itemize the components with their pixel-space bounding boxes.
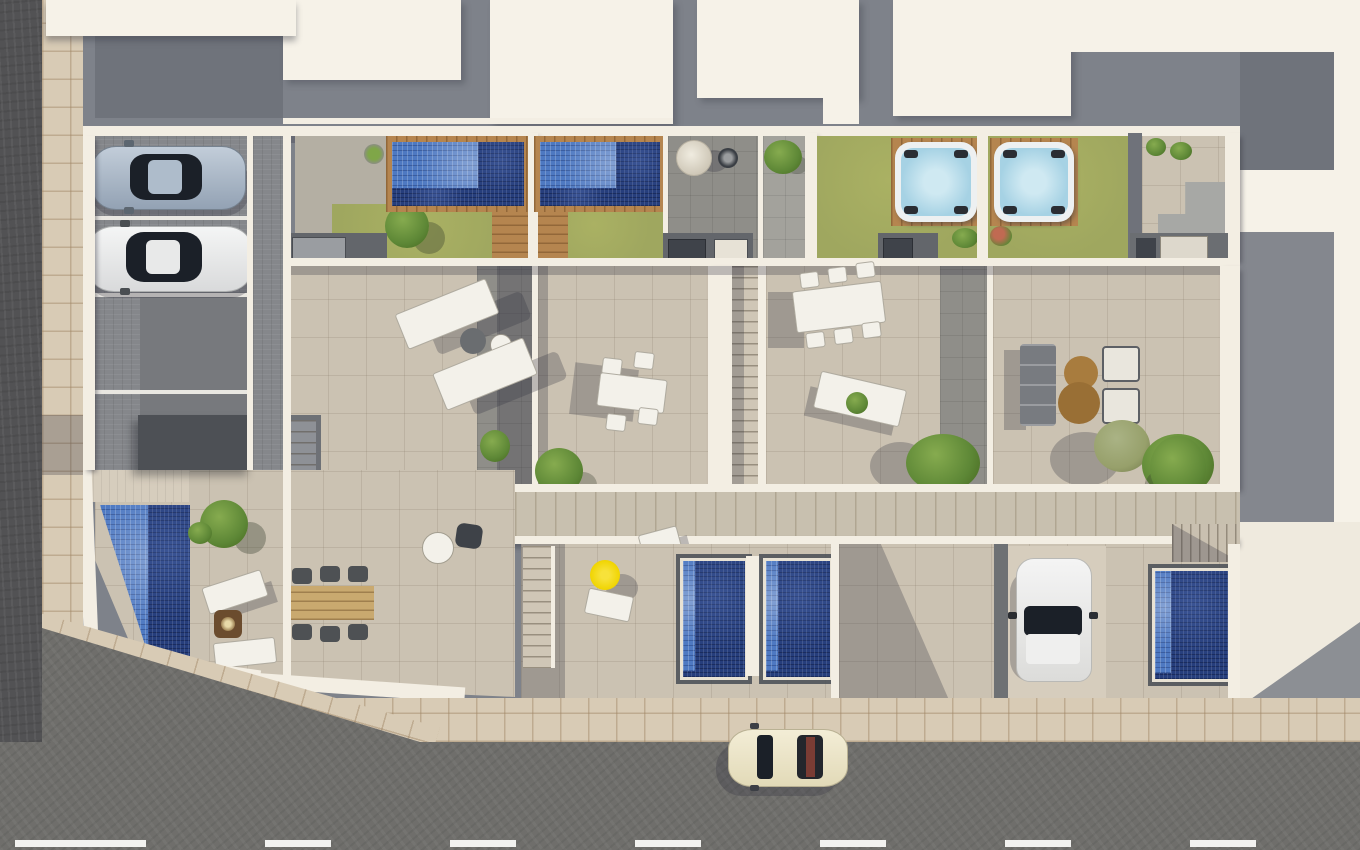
- dining-chair: [633, 351, 655, 370]
- cream-car-mirror: [750, 785, 759, 791]
- shrub: [952, 228, 978, 248]
- plunge-pool-3-step: [1155, 571, 1171, 673]
- silver-car-roof: [148, 160, 182, 194]
- dining-chair: [605, 413, 627, 432]
- side-table-dark: [460, 328, 486, 354]
- cream-car-windshield: [757, 735, 773, 779]
- armchair: [1102, 346, 1140, 382]
- pool-divider-wall: [746, 556, 760, 676]
- right-roof-gray: [1240, 52, 1336, 170]
- dining-chair-dark: [320, 626, 340, 642]
- white-car-mirror: [1008, 612, 1017, 619]
- walkway-plant: [480, 430, 510, 462]
- hot-tub-2-headrest: [1051, 206, 1065, 214]
- palm-plant: [764, 140, 802, 174]
- dining-chair-dark: [320, 566, 340, 582]
- dark-chair: [454, 522, 483, 549]
- silver-car-mirror: [124, 207, 134, 214]
- terrace-right-wall: [1220, 266, 1240, 490]
- hanging-chair: [676, 140, 712, 176]
- fire-bowl: [718, 148, 738, 168]
- outdoor-kitchen-unit: [883, 238, 913, 259]
- bottom-road: [0, 742, 1360, 850]
- sidewalk-shadow: [42, 415, 83, 475]
- white-car-mirror: [120, 220, 130, 227]
- stair-wall: [758, 266, 766, 490]
- dining-chair: [827, 266, 848, 284]
- stair-wall: [708, 266, 732, 490]
- outdoor-kitchen-unit: [668, 239, 706, 260]
- road-lane-dashes: [0, 840, 1360, 847]
- white-car-roof: [146, 240, 180, 274]
- dining-chair-dark: [292, 624, 312, 640]
- cream-car-mirror: [750, 723, 759, 729]
- terrace-top-wall: [283, 258, 1240, 266]
- hot-tub-1-headrest: [954, 150, 968, 158]
- unit1-left-wall: [283, 133, 291, 693]
- white-car-mirror: [120, 288, 130, 295]
- dining-chair: [799, 271, 820, 289]
- dining-chair-dark: [348, 624, 368, 640]
- central-staircase-shadow: [732, 266, 744, 490]
- garden-steps: [492, 204, 528, 262]
- roof-white-panel: [283, 0, 461, 80]
- cream-car-rear-stripe: [806, 737, 815, 777]
- armchair: [1102, 388, 1140, 424]
- dining-chair: [637, 407, 659, 426]
- roof-white-panel: [490, 0, 673, 124]
- dining-chair: [833, 327, 854, 345]
- plunge-pool-1-step: [683, 561, 695, 671]
- rooftop-pool-2-deep: [616, 142, 660, 206]
- rooftop-pool-1-deep: [478, 142, 524, 206]
- roof-white-panel: [823, 96, 859, 124]
- dining-table-wood: [290, 586, 374, 620]
- coffee-table-brown: [1058, 382, 1100, 424]
- corner-pool-deep: [148, 505, 190, 657]
- dining-chair: [805, 331, 826, 349]
- flower-plant: [990, 226, 1012, 246]
- hot-tub-1-headrest: [954, 206, 968, 214]
- unit-divider-wall: [977, 133, 988, 262]
- sidewalk-left: [42, 0, 83, 640]
- potted-plant: [364, 144, 384, 164]
- hot-tub-2-headrest: [1003, 206, 1017, 214]
- side-path: [253, 136, 287, 470]
- unit-divider-wall: [831, 544, 839, 700]
- upper-parapet: [83, 126, 1240, 136]
- small-palm: [1146, 138, 1166, 156]
- roof-white-panel: [1070, 0, 1360, 52]
- parking-stripe: [95, 216, 247, 220]
- outdoor-kitchen-unit: [714, 239, 748, 260]
- cream-car: [728, 729, 848, 787]
- garden-steps: [538, 204, 568, 262]
- aerial-render-scene: [0, 0, 1360, 850]
- unit-divider-wall: [805, 133, 817, 262]
- dining-chair: [855, 261, 876, 279]
- lounge-sofa: [1020, 344, 1056, 426]
- roof-white-panel: [697, 0, 859, 98]
- roof-parapet-line: [283, 118, 673, 124]
- right-gray-court: [1240, 232, 1334, 522]
- right-roof-white: [1240, 170, 1336, 232]
- rooftop-pool-2-deep: [540, 188, 616, 206]
- dining-chair-dark: [292, 568, 312, 584]
- white-car-mirror: [1089, 612, 1098, 619]
- rooftop-pool-1-deep: [392, 188, 478, 206]
- parking-stripe: [95, 390, 247, 394]
- terrace-band-top-shadow: [290, 266, 1220, 275]
- white-car-roof: [1026, 634, 1080, 664]
- hot-tub-2-headrest: [1003, 150, 1017, 158]
- fire-pit-center: [221, 617, 235, 631]
- yellow-umbrella: [590, 560, 620, 590]
- lounger-plant: [846, 392, 868, 414]
- hot-tub-1-headrest: [904, 150, 918, 158]
- unitB-stair-wall: [551, 546, 555, 668]
- charcoal-roof: [138, 415, 253, 470]
- roof-gray-dark-patch: [95, 30, 283, 118]
- left-road: [0, 0, 42, 850]
- dining-chair-dark: [348, 566, 368, 582]
- roof-white-topleft: [46, 0, 296, 36]
- round-side-table: [422, 532, 454, 564]
- white-car-windshield: [1024, 606, 1082, 636]
- unit-divider-wall: [1228, 544, 1240, 700]
- hot-tub-1-headrest: [904, 206, 918, 214]
- gray-strip-stairs: [994, 544, 1008, 700]
- silver-car-mirror: [124, 140, 134, 147]
- corner-shrub: [188, 522, 212, 544]
- plot-wall-left: [83, 136, 95, 470]
- dining-chair: [861, 321, 882, 339]
- small-palm: [1170, 142, 1192, 160]
- outdoor-kitchen-unit: [1136, 238, 1156, 258]
- roof-white-panel: [893, 0, 1071, 116]
- plunge-pool-2-step: [766, 561, 778, 671]
- unitB-stairs: [523, 546, 551, 668]
- hot-tub-2-headrest: [1051, 150, 1065, 158]
- corner-light-paving: [85, 470, 190, 502]
